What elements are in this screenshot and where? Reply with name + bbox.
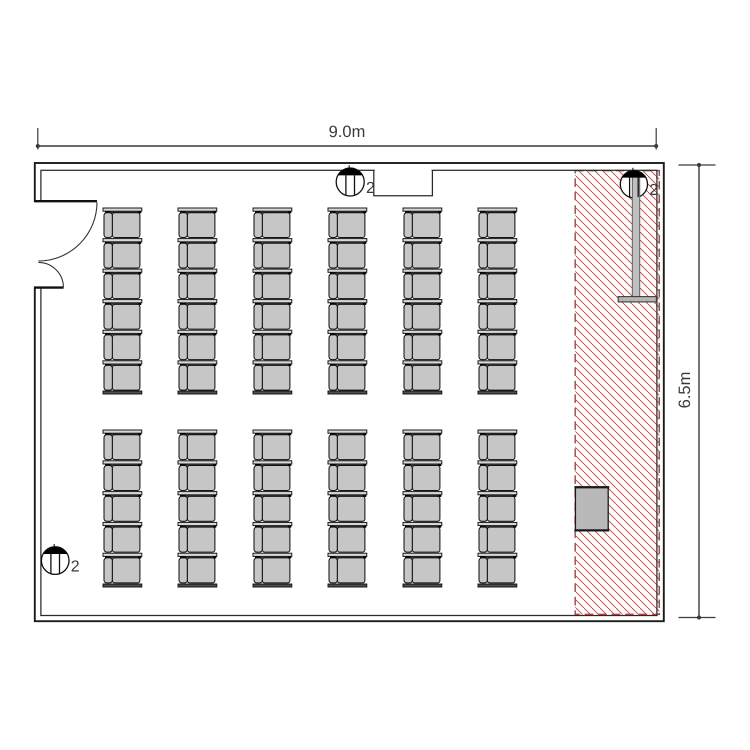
svg-text:6.5m: 6.5m — [676, 372, 694, 409]
svg-text:2: 2 — [71, 558, 80, 575]
svg-text:2: 2 — [649, 182, 658, 199]
svg-text:2: 2 — [366, 180, 375, 197]
svg-text:9.0m: 9.0m — [329, 123, 366, 141]
